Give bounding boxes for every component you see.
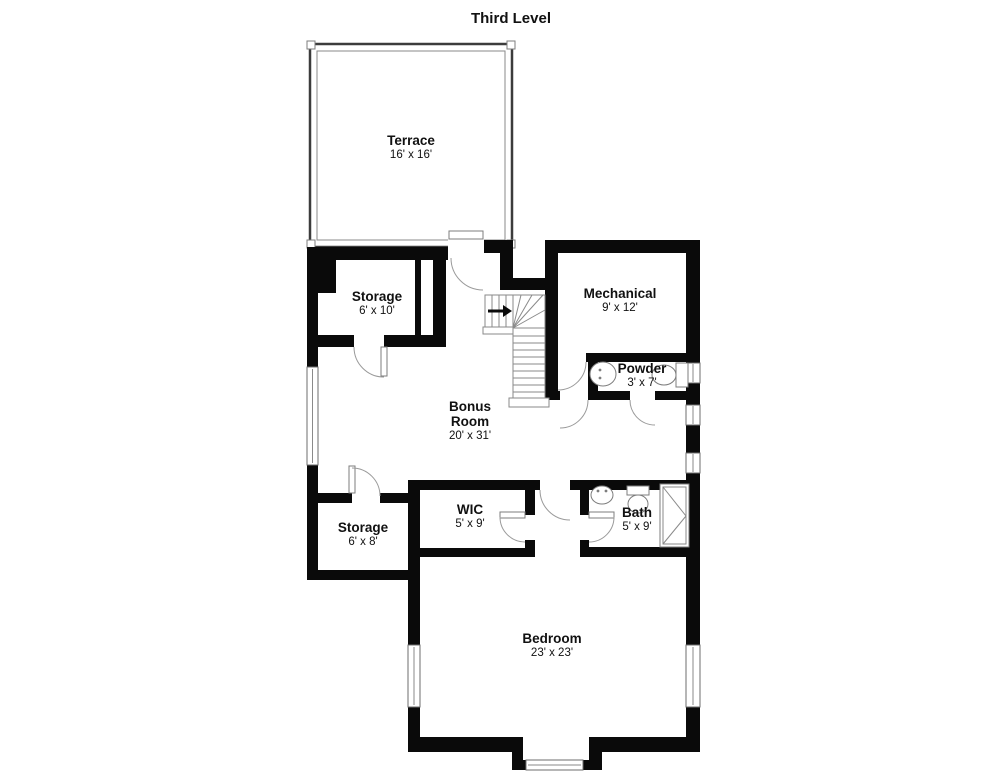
- wall-segment: [307, 335, 354, 347]
- wall-segment: [415, 256, 421, 340]
- door-opening: [630, 391, 655, 400]
- wall-segment: [418, 480, 540, 490]
- door-opening: [352, 493, 380, 503]
- door-leaf: [349, 466, 355, 493]
- faucet-dot: [597, 490, 600, 493]
- wall-segment: [583, 760, 602, 770]
- floor-plan: Third Level Terrace 16' x 16' Storage 6'…: [0, 0, 1008, 778]
- room-label-powder: Powder 3' x 7': [618, 362, 667, 391]
- room-dims: 16' x 16': [387, 149, 435, 163]
- page-title: Third Level: [471, 10, 551, 27]
- door-leaf: [449, 231, 483, 239]
- wall-segment: [307, 570, 418, 580]
- door-arc: [630, 400, 655, 425]
- door-arc: [558, 362, 586, 390]
- door-arc: [560, 400, 588, 428]
- door-opening: [354, 335, 384, 347]
- door-leaf: [500, 512, 525, 518]
- room-label-bonus: Bonus Room 20' x 31': [439, 400, 501, 443]
- room-name: Bedroom: [522, 632, 581, 647]
- room-name: Powder: [618, 362, 667, 377]
- room-dims: 6' x 8': [338, 536, 388, 550]
- terrace-corner-post: [307, 240, 315, 248]
- terrace-corner-post: [307, 41, 315, 49]
- room-dims: 9' x 12': [584, 302, 657, 316]
- room-label-storage-upper: Storage 6' x 10': [352, 290, 402, 319]
- room-label-bedroom: Bedroom 23' x 23': [522, 632, 581, 661]
- door-arc: [354, 347, 384, 377]
- door-opening: [448, 238, 484, 259]
- wall-segment: [686, 425, 700, 453]
- room-name: Mechanical: [584, 287, 657, 302]
- stair-base-step: [509, 398, 549, 407]
- bath-toilet-tank: [627, 486, 649, 495]
- wall-segment: [588, 391, 630, 400]
- room-dims: 20' x 31': [439, 430, 501, 444]
- room-label-storage-lower: Storage 6' x 8': [338, 521, 388, 550]
- wall-segment: [307, 465, 318, 580]
- door-opening: [560, 391, 588, 400]
- stair-landing-edge: [483, 327, 513, 334]
- windows: [307, 363, 700, 770]
- wall-segment: [408, 548, 535, 557]
- wall-segment: [545, 240, 558, 400]
- wall-segment: [525, 480, 535, 515]
- wall-segment: [597, 737, 700, 752]
- powder-sink: [590, 362, 616, 386]
- door-arc: [540, 490, 570, 520]
- wall-segment: [408, 557, 420, 645]
- room-dims: 5' x 9': [622, 521, 652, 535]
- room-label-terrace: Terrace 16' x 16': [387, 134, 435, 163]
- room-name: WIC: [455, 503, 484, 518]
- room-label-bath: Bath 5' x 9': [622, 506, 652, 535]
- room-dims: 5' x 9': [455, 518, 484, 532]
- door-arc: [352, 468, 380, 496]
- wall-segment: [686, 240, 700, 363]
- door-opening: [525, 515, 535, 540]
- room-name: Bonus Room: [439, 400, 501, 430]
- faucet-dot: [599, 369, 602, 372]
- room-label-wic: WIC 5' x 9': [455, 503, 484, 532]
- room-label-mechanical: Mechanical 9' x 12': [584, 287, 657, 316]
- wall-segment: [580, 480, 589, 515]
- faucet-dot: [599, 377, 602, 380]
- wall-segment: [307, 493, 352, 503]
- room-name: Storage: [352, 290, 402, 305]
- door-leaf: [589, 512, 614, 518]
- wall-segment: [307, 247, 318, 367]
- floor-plan-drawing: [0, 0, 1008, 778]
- room-dims: 6' x 10': [352, 305, 402, 319]
- door-opening: [540, 480, 570, 490]
- wall-segment: [545, 240, 698, 253]
- faucet-dot: [605, 490, 608, 493]
- room-dims: 23' x 23': [522, 647, 581, 661]
- door-leaf: [381, 347, 387, 376]
- stair-lower-run: [513, 328, 545, 398]
- wall-segment: [580, 547, 700, 557]
- room-name: Storage: [338, 521, 388, 536]
- door-opening: [580, 515, 589, 540]
- door-opening: [558, 353, 586, 362]
- door-arc: [500, 517, 525, 542]
- terrace-corner-post: [507, 41, 515, 49]
- room-name: Bath: [622, 506, 652, 521]
- wall-segment: [408, 737, 523, 752]
- wall-segment: [512, 760, 526, 770]
- room-dims: 3' x 7': [618, 377, 667, 391]
- shower: [660, 484, 689, 547]
- wall-segment: [433, 247, 446, 347]
- room-name: Terrace: [387, 134, 435, 149]
- bath-sink: [591, 486, 613, 504]
- door-arc: [451, 258, 483, 290]
- door-arc: [589, 517, 614, 542]
- stairs: [483, 295, 549, 407]
- powder-toilet-tank: [676, 363, 688, 387]
- wall-segment: [384, 335, 446, 347]
